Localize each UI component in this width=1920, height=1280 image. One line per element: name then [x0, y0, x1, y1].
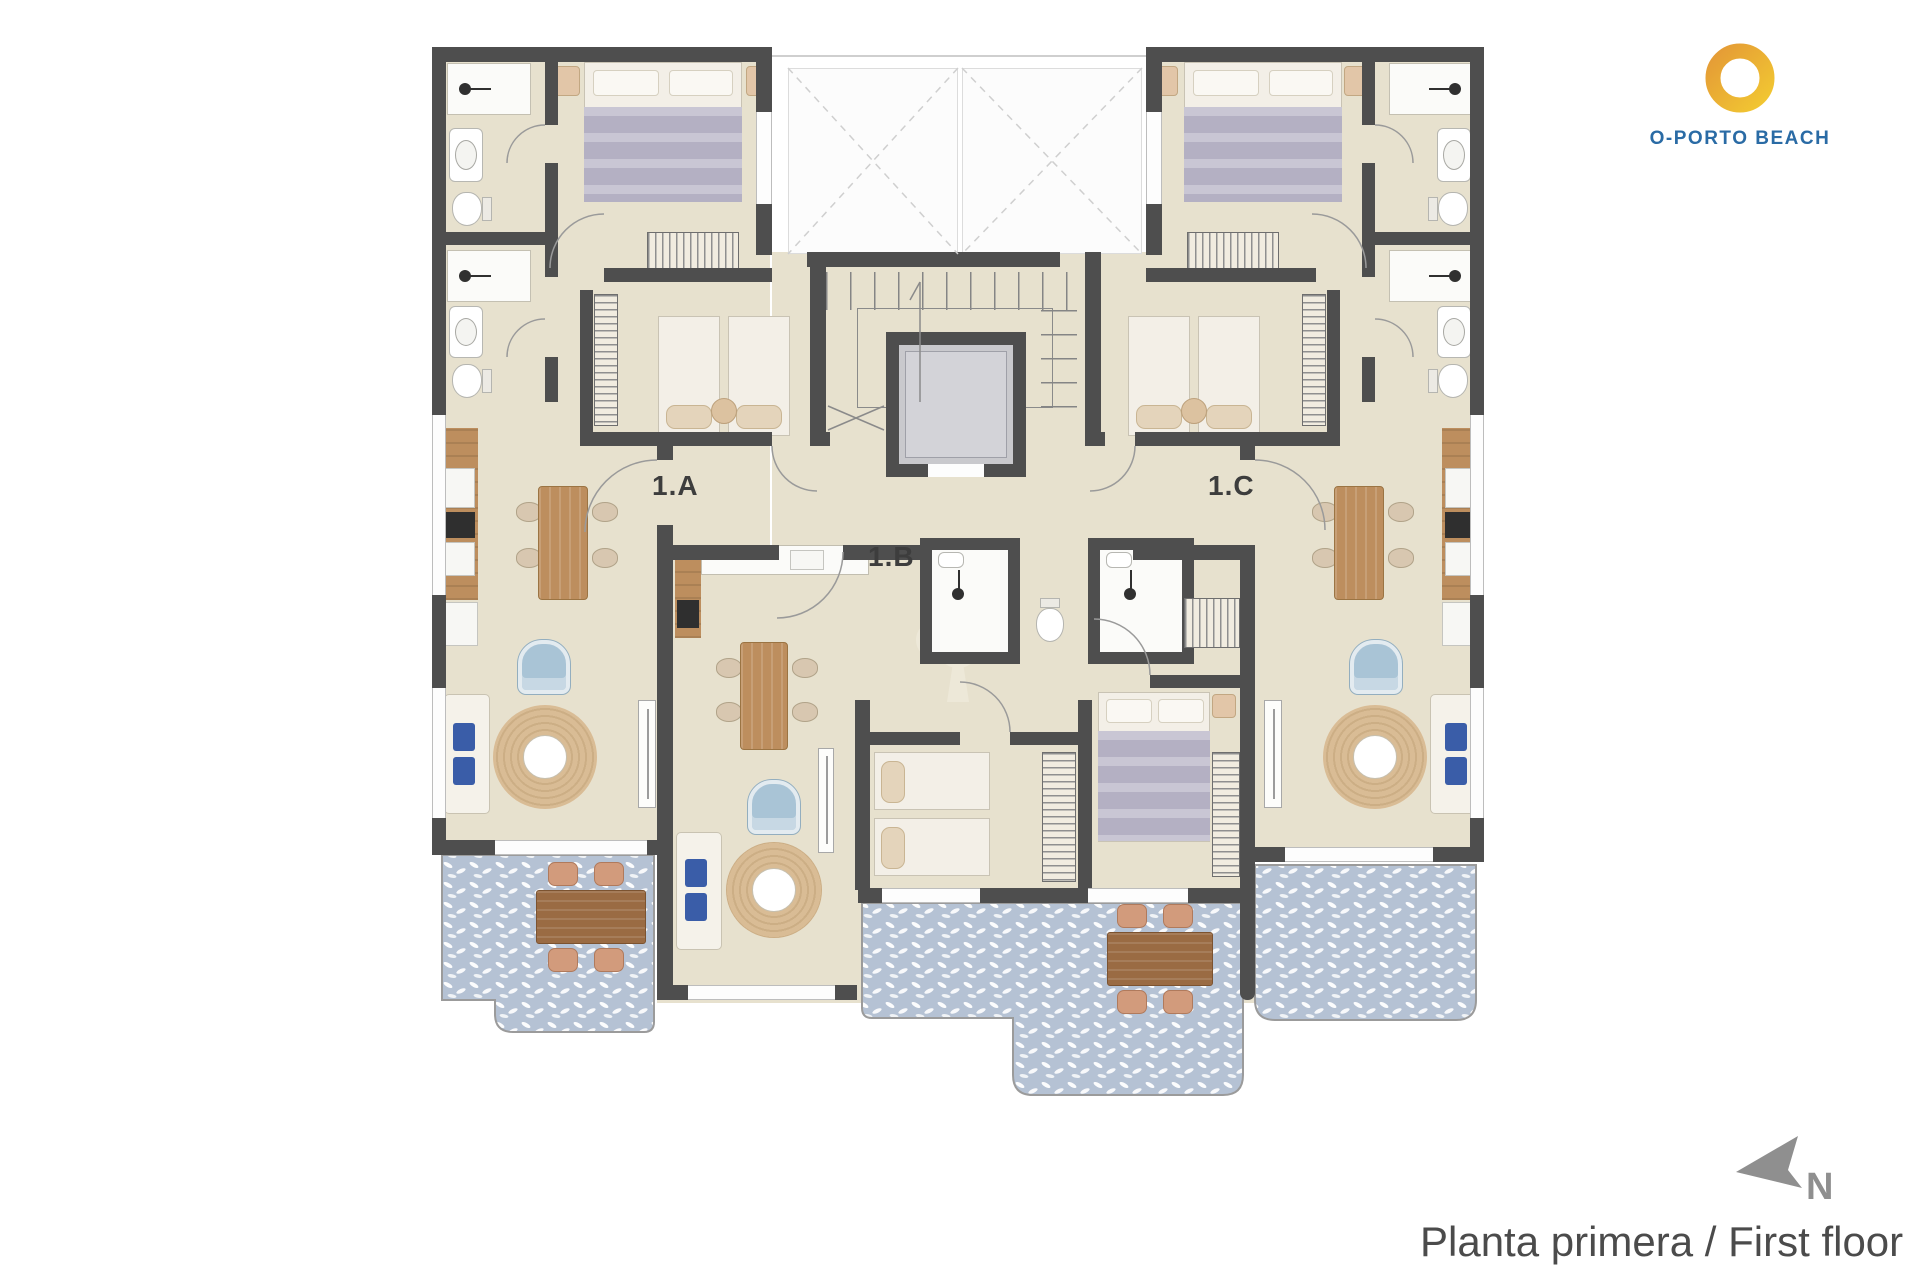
stair-direction	[828, 282, 920, 430]
annotations-layer	[0, 0, 1920, 1280]
floor-caption: Planta primera / First floor	[1420, 1218, 1903, 1266]
logo-text: O-PORTO BEACH	[1630, 128, 1850, 150]
logo: O-PORTO BEACH	[1630, 42, 1850, 162]
unit-label-1b: 1.B	[868, 541, 915, 573]
north-label: N	[1806, 1166, 1833, 1209]
door-arcs	[507, 125, 1413, 732]
north-arrow-icon	[1726, 1126, 1816, 1196]
unit-label-1a: 1.A	[652, 470, 699, 502]
logo-ring-icon	[1704, 42, 1776, 114]
unit-label-1c: 1.C	[1208, 470, 1255, 502]
floor-plan-canvas: 1.A 1.B 1.C O-PORTO BEACH N Planta prime…	[0, 0, 1920, 1280]
